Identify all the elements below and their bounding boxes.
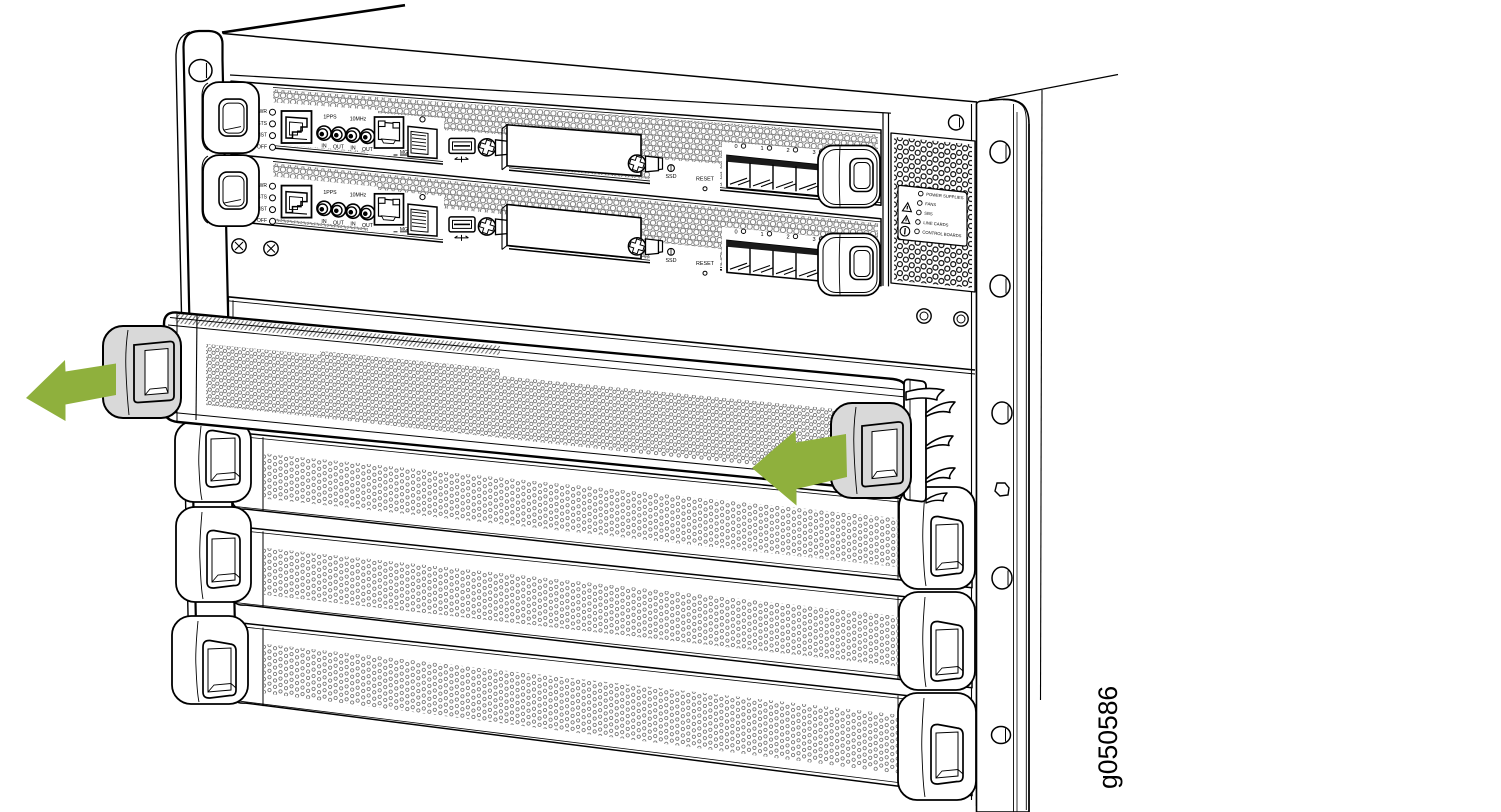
svg-text:OUT: OUT (362, 147, 374, 153)
svg-text:g050586: g050586 (1093, 686, 1123, 789)
svg-text:IN: IN (350, 146, 355, 152)
svg-text:OFF: OFF (257, 144, 267, 150)
svg-text:IN: IN (321, 219, 326, 225)
svg-text:SSD: SSD (665, 174, 676, 180)
svg-text:3: 3 (812, 237, 815, 243)
svg-text:10MHz: 10MHz (350, 117, 367, 123)
svg-text:SBS: SBS (924, 211, 933, 217)
svg-text:1PPS: 1PPS (323, 115, 337, 121)
svg-text:1PPS: 1PPS (323, 190, 337, 196)
svg-text:IN: IN (321, 144, 326, 150)
svg-text:OUT: OUT (362, 223, 374, 229)
svg-text:RESET: RESET (696, 177, 715, 183)
svg-text:IN: IN (350, 222, 355, 228)
svg-text:1: 1 (760, 146, 763, 152)
svg-text:RESET: RESET (696, 261, 715, 267)
svg-text:2: 2 (786, 148, 789, 154)
svg-text:OUT: OUT (333, 145, 345, 151)
svg-text:1: 1 (760, 232, 763, 238)
svg-text:0: 0 (734, 144, 737, 150)
svg-text:SSD: SSD (665, 258, 676, 264)
svg-text:10MHz: 10MHz (350, 193, 367, 199)
svg-text:2: 2 (786, 234, 789, 240)
svg-text:3: 3 (812, 150, 815, 156)
svg-text:OUT: OUT (333, 220, 345, 226)
svg-text:0: 0 (734, 229, 737, 235)
svg-text:OFF: OFF (257, 218, 267, 224)
